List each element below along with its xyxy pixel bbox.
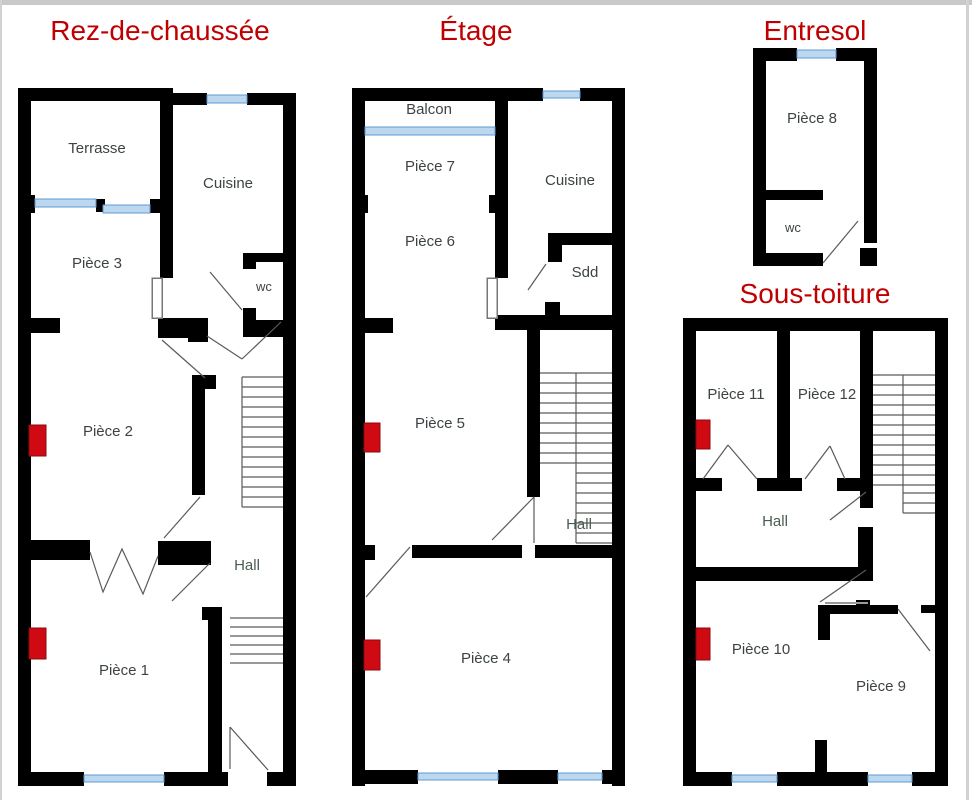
room-label-cuisine-rdc: Cuisine (203, 175, 253, 192)
room-label-sdd: Sdd (572, 264, 599, 281)
room-label-hall-rdc: Hall (234, 557, 260, 574)
balcony-window (365, 127, 495, 135)
room-label-piece-12: Pièce 12 (798, 386, 856, 403)
plan-title-etage: Étage (439, 15, 512, 46)
room-label-piece-10: Pièce 10 (732, 641, 790, 658)
room-label-terrasse: Terrasse (68, 140, 126, 157)
walls (753, 48, 877, 266)
stairs-upper (242, 377, 283, 507)
window (35, 199, 96, 207)
floor-plan-page: Rez-de-chaussée (0, 0, 972, 800)
red-marker (364, 640, 380, 670)
window (207, 95, 247, 103)
room-label-hall-sous-toiture: Hall (762, 513, 788, 530)
red-marker (29, 628, 46, 659)
red-marker (29, 425, 46, 456)
window (418, 773, 498, 780)
room-labels: Pièce 11 Pièce 12 Hall Pièce 10 Pièce 9 (707, 386, 906, 695)
room-label-cuisine-etage: Cuisine (545, 172, 595, 189)
left-border (0, 0, 2, 800)
room-label-piece-8: Pièce 8 (787, 110, 837, 127)
room-label-piece-6: Pièce 6 (405, 233, 455, 250)
room-label-wc-entresol: wc (784, 220, 801, 235)
room-labels: Pièce 8 wc (784, 110, 837, 235)
plan-entresol: Entresol Pièce 8 wc (753, 15, 877, 266)
door-leaf (152, 278, 162, 318)
plan-rez-de-chaussee: Rez-de-chaussée (18, 15, 296, 786)
top-border (0, 0, 972, 5)
stairs-lower (230, 618, 283, 663)
room-label-piece-11: Pièce 11 (707, 386, 764, 403)
room-label-piece-5: Pièce 5 (415, 415, 465, 432)
floor-plan-svg: Rez-de-chaussée (0, 0, 972, 800)
window (797, 50, 836, 58)
room-label-balcon: Balcon (406, 101, 452, 118)
windows (365, 91, 602, 780)
door-swings (823, 221, 858, 263)
door-leaf (487, 278, 497, 318)
window (84, 775, 164, 782)
red-markers (696, 420, 710, 660)
plan-title-sous-toiture: Sous-toiture (740, 278, 891, 309)
room-label-wc-rdc: wc (255, 279, 272, 294)
plan-title-entresol: Entresol (764, 15, 867, 46)
walls (352, 88, 625, 786)
window (558, 773, 602, 780)
stairs (873, 375, 935, 513)
right-border (966, 0, 969, 800)
room-label-piece-7: Pièce 7 (405, 158, 455, 175)
room-label-piece-2: Pièce 2 (83, 423, 133, 440)
folding-door (90, 549, 158, 594)
plan-sous-toiture: Sous-toiture (683, 278, 948, 786)
room-label-hall-etage: Hall (566, 516, 592, 533)
room-label-piece-9: Pièce 9 (856, 678, 906, 695)
red-marker (364, 423, 380, 452)
window (103, 205, 150, 213)
room-label-piece-3: Pièce 3 (72, 255, 122, 272)
room-label-piece-4: Pièce 4 (461, 650, 511, 667)
window (732, 775, 777, 782)
room-label-piece-1: Pièce 1 (99, 662, 149, 679)
red-marker (696, 628, 710, 660)
door-swings (703, 445, 930, 651)
plan-etage: Étage (352, 15, 625, 786)
plan-title-rez-de-chaussee: Rez-de-chaussée (50, 15, 269, 46)
red-marker (696, 420, 710, 449)
window (868, 775, 912, 782)
windows (797, 50, 836, 58)
window (543, 91, 580, 98)
